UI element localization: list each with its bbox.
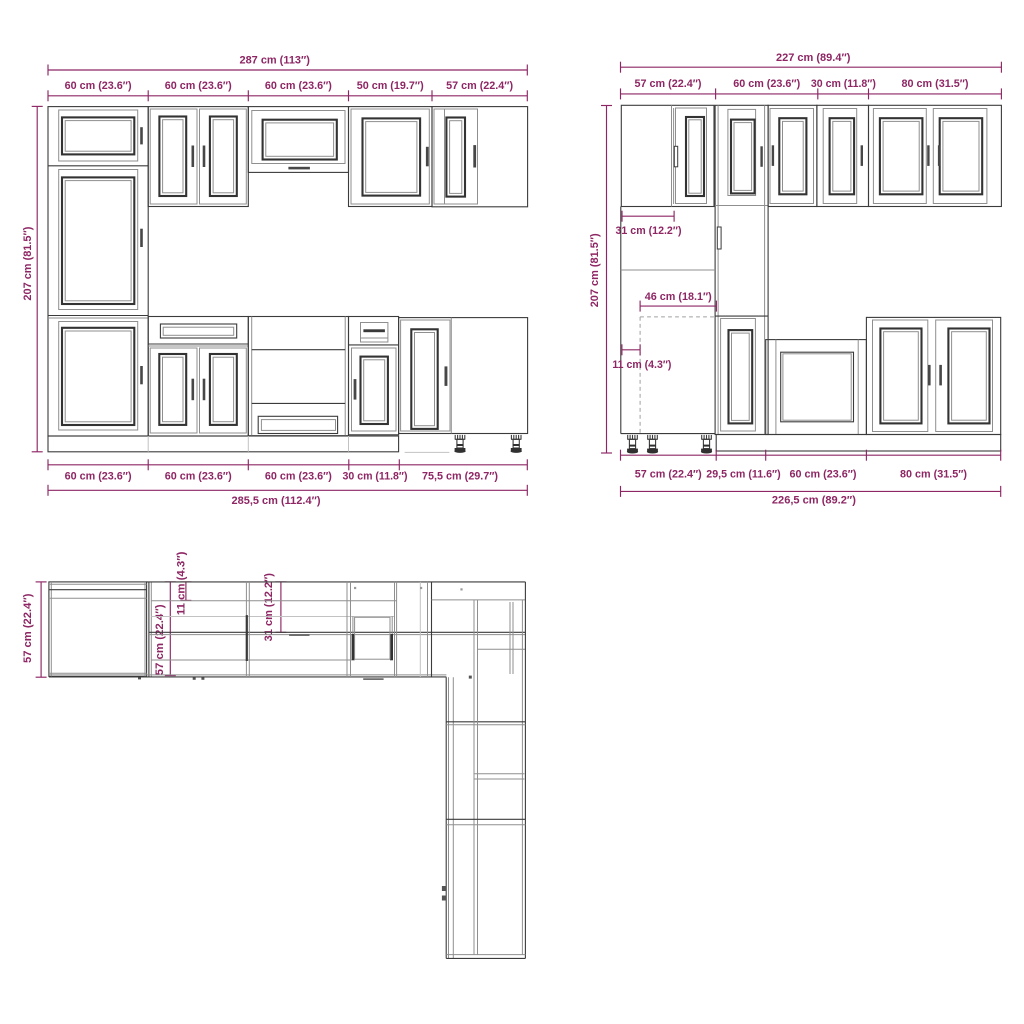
svg-text:60 cm (23.6″): 60 cm (23.6″) — [165, 470, 232, 482]
svg-text:57 cm (22.4″): 57 cm (22.4″) — [635, 78, 702, 90]
svg-text:207 cm (81.5″): 207 cm (81.5″) — [22, 226, 34, 300]
svg-text:50 cm (19.7″): 50 cm (19.7″) — [357, 80, 424, 92]
svg-text:60 cm (23.6″): 60 cm (23.6″) — [265, 80, 332, 92]
svg-text:285,5 cm (112.4″): 285,5 cm (112.4″) — [232, 495, 321, 507]
svg-text:60 cm (23.6″): 60 cm (23.6″) — [65, 80, 132, 92]
svg-text:31 cm (12.2″): 31 cm (12.2″) — [263, 573, 275, 642]
svg-text:80 cm (31.5″): 80 cm (31.5″) — [902, 78, 969, 90]
svg-text:46 cm (18.1″): 46 cm (18.1″) — [645, 291, 712, 303]
svg-text:30 cm (11.8″): 30 cm (11.8″) — [343, 470, 408, 482]
svg-text:60 cm (23.6″): 60 cm (23.6″) — [65, 470, 132, 482]
svg-text:60 cm (23.6″): 60 cm (23.6″) — [733, 78, 800, 90]
svg-text:287 cm (113″): 287 cm (113″) — [240, 54, 311, 66]
svg-text:226,5 cm (89.2″): 226,5 cm (89.2″) — [772, 495, 856, 507]
svg-text:31 cm (12.2″): 31 cm (12.2″) — [616, 225, 682, 237]
svg-text:29,5 cm (11.6″): 29,5 cm (11.6″) — [706, 469, 781, 481]
svg-text:57 cm (22.4″): 57 cm (22.4″) — [154, 604, 166, 675]
svg-text:57 cm (22.4″): 57 cm (22.4″) — [446, 80, 513, 92]
svg-text:11 cm (4.3″): 11 cm (4.3″) — [612, 359, 671, 371]
svg-text:227 cm (89.4″): 227 cm (89.4″) — [776, 52, 851, 64]
svg-text:60 cm (23.6″): 60 cm (23.6″) — [790, 469, 857, 481]
svg-text:60 cm (23.6″): 60 cm (23.6″) — [265, 470, 332, 482]
svg-text:80 cm (31.5″): 80 cm (31.5″) — [900, 469, 967, 481]
svg-text:75,5 cm (29.7″): 75,5 cm (29.7″) — [422, 470, 498, 482]
svg-text:207 cm (81.5″): 207 cm (81.5″) — [589, 233, 601, 307]
svg-text:57 cm (22.4″): 57 cm (22.4″) — [22, 593, 34, 663]
svg-text:30 cm (11.8″): 30 cm (11.8″) — [811, 78, 876, 90]
svg-text:60 cm (23.6″): 60 cm (23.6″) — [165, 80, 232, 92]
svg-text:11 cm (4.3″): 11 cm (4.3″) — [176, 551, 188, 615]
svg-text:57 cm (22.4″): 57 cm (22.4″) — [635, 469, 702, 481]
